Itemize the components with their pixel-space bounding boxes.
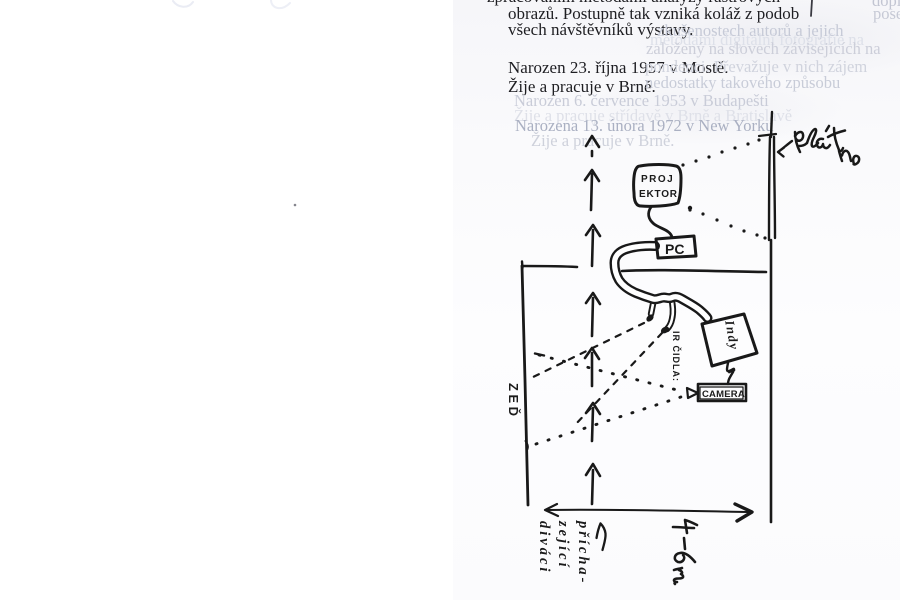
svg-text:PC: PC (665, 241, 684, 257)
svg-text:PROJ: PROJ (641, 174, 674, 185)
svg-text:EKTOR: EKTOR (639, 189, 678, 200)
svg-text:CAMERA: CAMERA (702, 389, 745, 400)
